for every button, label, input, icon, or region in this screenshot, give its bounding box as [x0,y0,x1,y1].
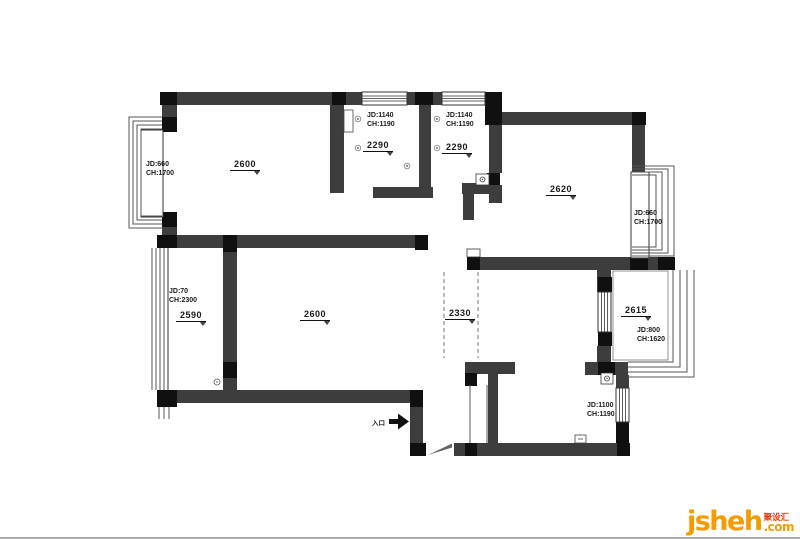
jd-value: JD:1100 [587,401,615,410]
jd-value: JD:70 [169,287,197,296]
level-mark-icon [645,317,651,321]
jd-value: JD:1140 [446,111,474,120]
right-bedroom-dim-label: 2620 [546,184,576,196]
ch-value: CH:1190 [367,120,395,129]
level-mark-icon [324,321,330,325]
ch-value: CH:1190 [587,410,615,419]
left-bay-window-spec: JD:660 CH:1700 [146,160,174,178]
master-bedroom-dim-label: 2600 [230,159,260,171]
left-balcony-dim-label: 2590 [176,310,206,322]
jd-value: JD:660 [146,160,174,169]
mid-room-2-spec: JD:1140 CH:1190 [446,111,474,129]
left-balcony-spec: JD:70 CH:2300 [169,287,197,305]
floorplan-drawing [0,0,800,539]
mid-room-1-spec: JD:1140 CH:1190 [367,111,395,129]
jsheh-watermark[interactable]: jsheh 聚设汇 .com [687,510,794,534]
level-mark-icon [570,196,576,200]
right-bay-window-spec: JD:660 CH:1700 [634,209,662,227]
jd-value: JD:800 [637,326,665,335]
level-mark-icon [387,152,393,156]
living-room-dim-label: 2600 [300,309,330,321]
entrance-label: 入口 [372,417,385,427]
right-balcony-spec: JD:800 CH:1620 [637,326,665,344]
ch-value: CH:1620 [637,335,665,344]
mid-room-1-dim-label: 2290 [363,140,393,152]
level-mark-icon [466,154,472,158]
jsheh-tld-text: .com [764,522,794,533]
level-mark-icon [254,171,260,175]
ch-value: CH:1190 [446,120,474,129]
bottom-right-window-spec: JD:1100 CH:1190 [587,401,615,419]
floorplan-page: JD:660 CH:1700 2600 JD:1140 CH:1190 2290… [0,0,800,539]
level-mark-icon [469,320,475,324]
ch-value: CH:1700 [634,218,662,227]
level-mark-icon [200,322,206,326]
ch-value: CH:2300 [169,296,197,305]
entrance-arrow-icon [389,414,409,430]
right-balcony-dim-label: 2615 [621,305,651,317]
jsheh-brand-text: jsheh [687,510,762,534]
jd-value: JD:660 [634,209,662,218]
passage-dim-label: 2330 [445,308,475,320]
mid-room-2-dim-label: 2290 [442,142,472,154]
ch-value: CH:1700 [146,169,174,178]
jd-value: JD:1140 [367,111,395,120]
